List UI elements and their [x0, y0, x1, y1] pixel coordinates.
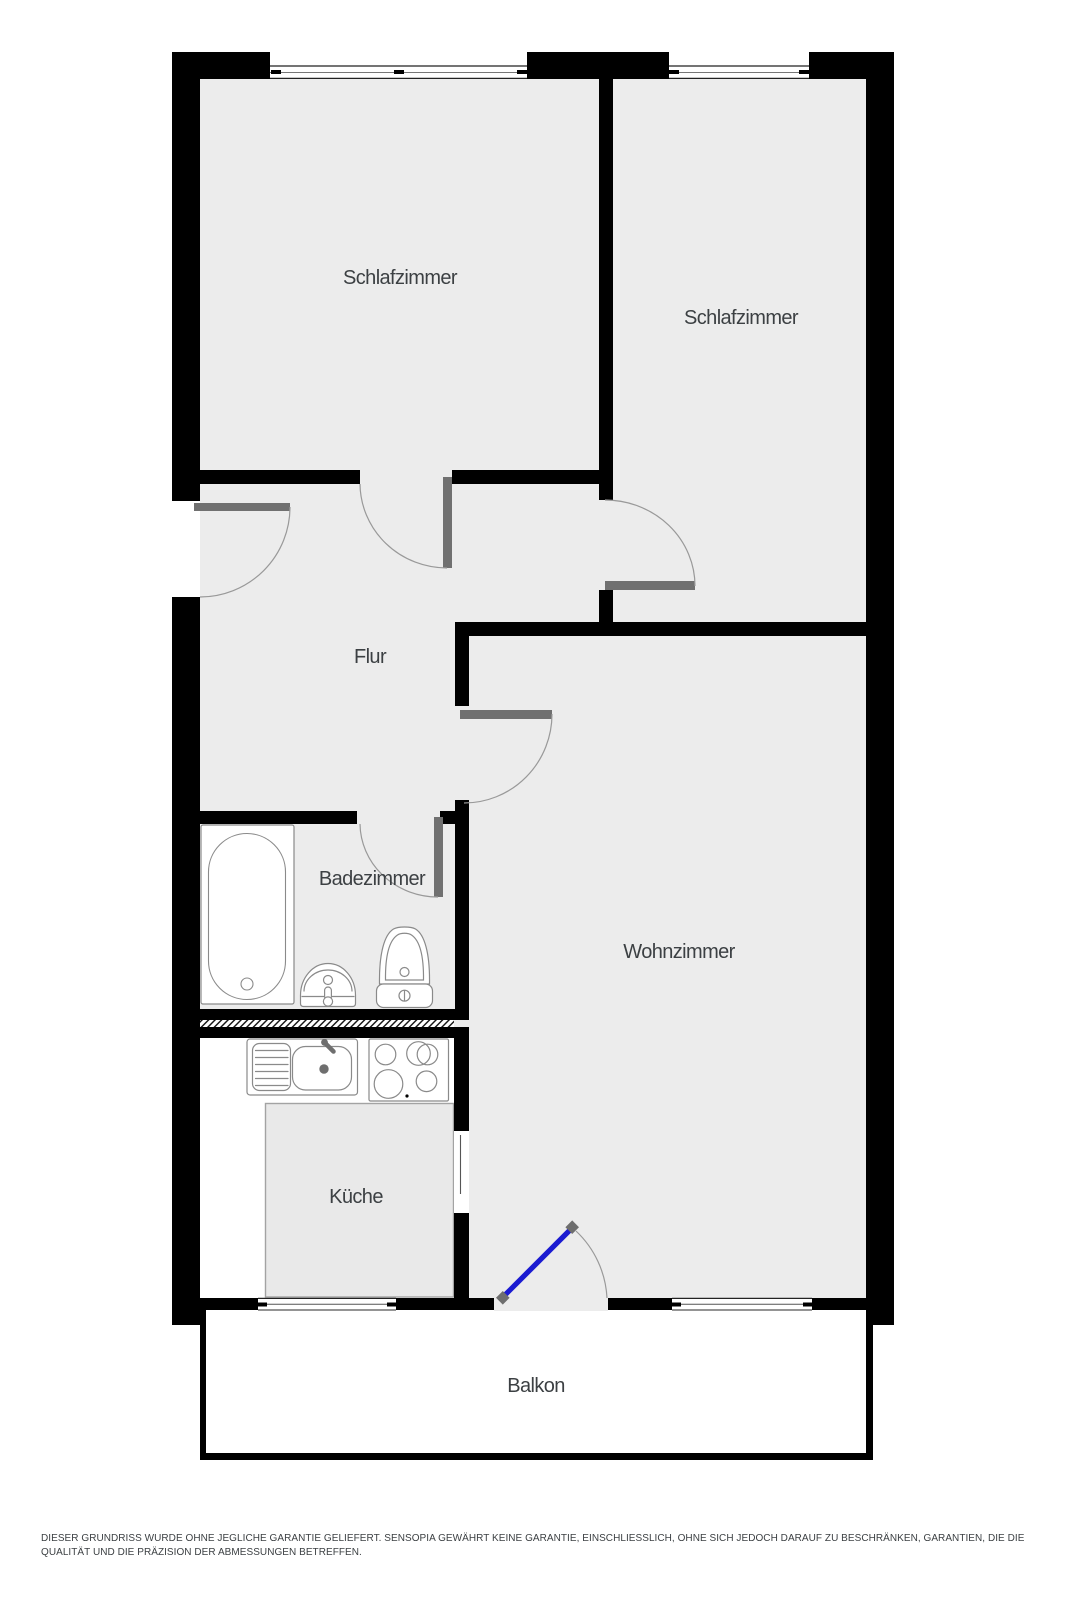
svg-text:Schlafzimmer: Schlafzimmer [343, 267, 458, 289]
svg-text:Badezimmer: Badezimmer [319, 868, 426, 890]
svg-text:Schlafzimmer: Schlafzimmer [684, 307, 799, 329]
svg-text:Balkon: Balkon [507, 1375, 565, 1397]
svg-text:Flur: Flur [354, 646, 387, 668]
svg-text:DIESER GRUNDRISS WURDE OHNE JE: DIESER GRUNDRISS WURDE OHNE JEGLICHE GAR… [41, 1532, 1025, 1544]
svg-text:Wohnzimmer: Wohnzimmer [623, 941, 735, 963]
svg-text:QUALITÄT UND DIE PRÄZISION DER: QUALITÄT UND DIE PRÄZISION DER ABMESSUNG… [41, 1546, 362, 1558]
svg-text:Küche: Küche [329, 1186, 383, 1208]
